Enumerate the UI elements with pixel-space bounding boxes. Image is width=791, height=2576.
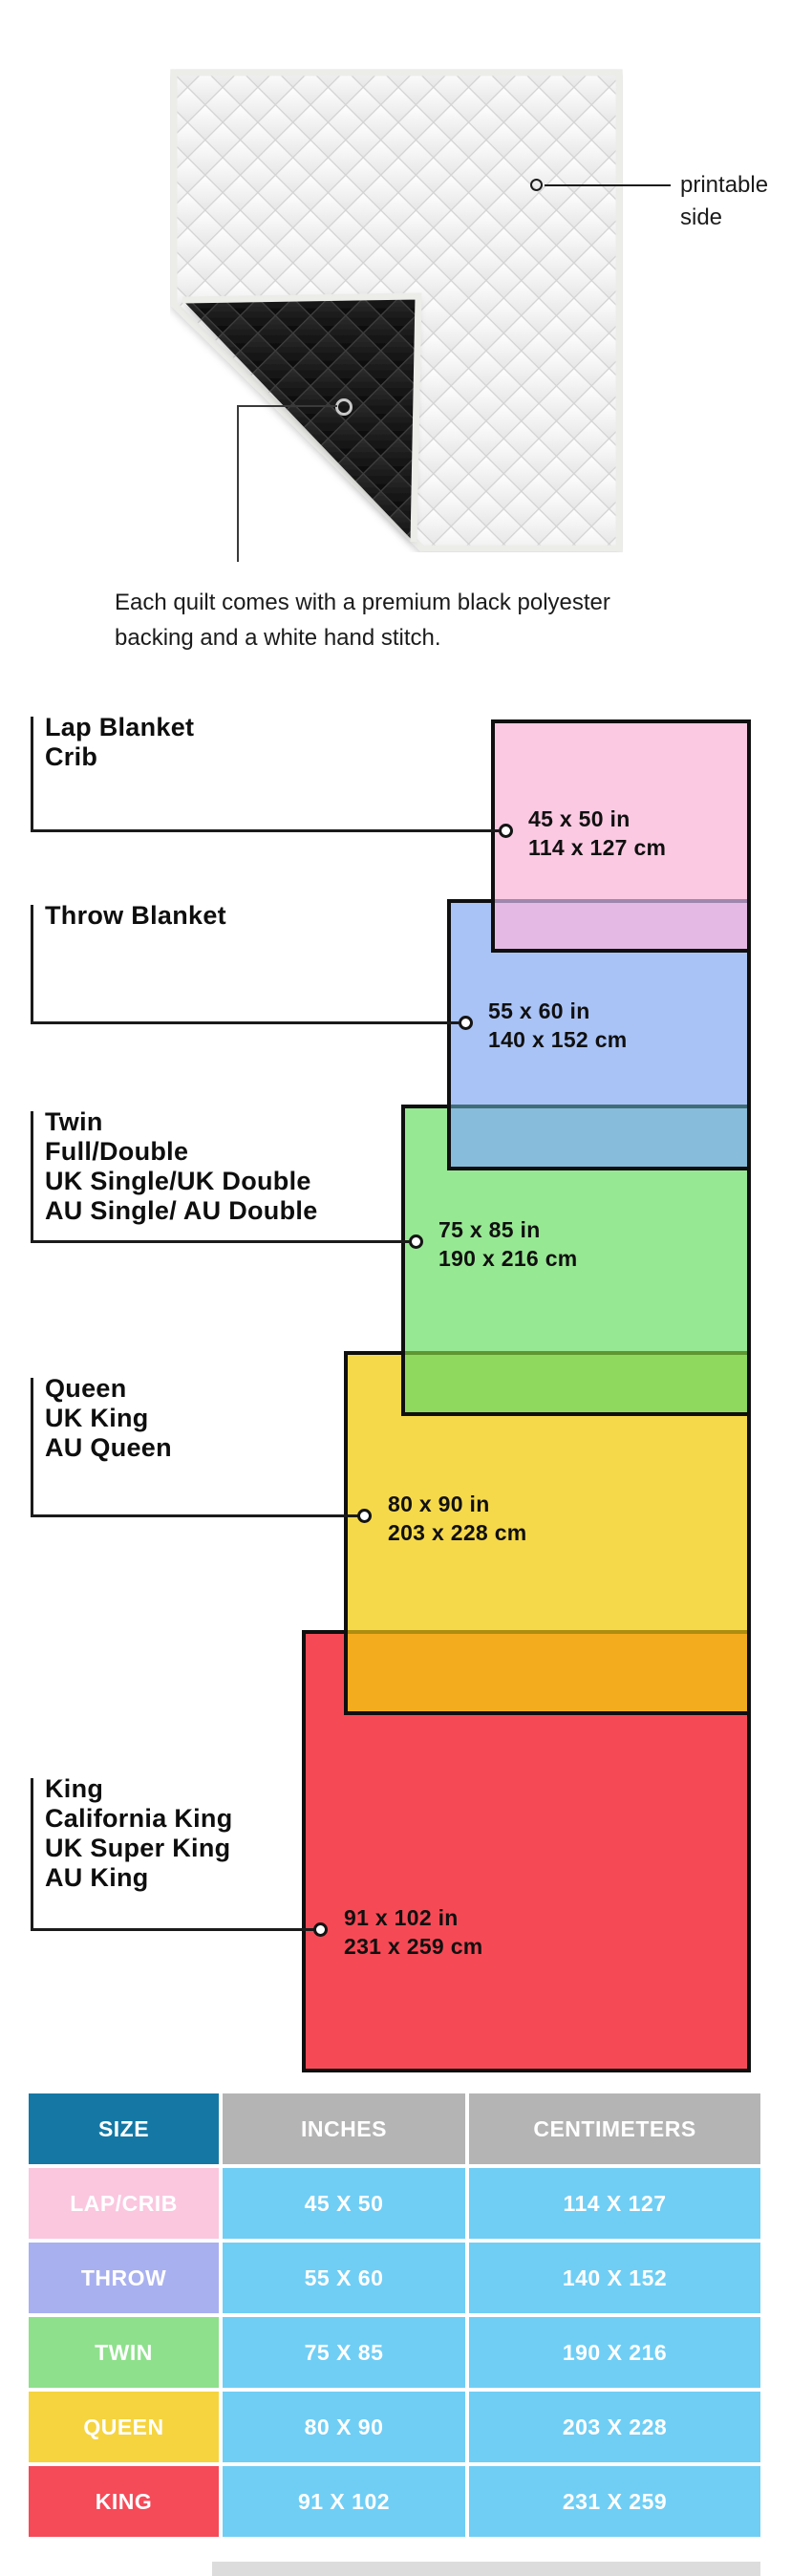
king-leader-vertical bbox=[31, 1778, 33, 1930]
table-cell-inches: 75 X 85 bbox=[223, 2317, 465, 2388]
twin-size-label: 75 x 85 in 190 x 216 cm bbox=[438, 1215, 578, 1273]
table-row-label-twin: TWIN bbox=[29, 2317, 219, 2388]
bottom-gray-strip bbox=[212, 2562, 760, 2576]
lap-crib-size-label: 45 x 50 in 114 x 127 cm bbox=[528, 805, 666, 862]
king-heading: King California King UK Super King AU Ki… bbox=[45, 1774, 233, 1893]
overlap-throw-twin bbox=[451, 1105, 747, 1167]
table-cell-cm: 114 X 127 bbox=[469, 2168, 760, 2239]
size-table: SIZE INCHES CENTIMETERS LAP/CRIB 45 X 50… bbox=[29, 2093, 760, 2537]
printable-side-leader-line bbox=[545, 184, 671, 186]
queen-size-label: 80 x 90 in 203 x 228 cm bbox=[388, 1490, 527, 1547]
size-guide-page: printable side Each quilt comes with a p… bbox=[0, 0, 791, 2576]
table-cell-cm: 190 X 216 bbox=[469, 2317, 760, 2388]
throw-marker-icon bbox=[459, 1016, 473, 1030]
table-cell-inches: 91 X 102 bbox=[223, 2466, 465, 2537]
table-cell-inches: 45 X 50 bbox=[223, 2168, 465, 2239]
twin-leader-vertical bbox=[31, 1111, 33, 1242]
quilt-black-backing-flap bbox=[182, 296, 418, 542]
overlap-twin-queen bbox=[405, 1351, 747, 1412]
printable-side-label: printable side bbox=[680, 169, 768, 234]
lap-crib-marker-icon bbox=[499, 824, 513, 838]
table-row-label-throw: THROW bbox=[29, 2243, 219, 2313]
queen-marker-icon bbox=[357, 1509, 372, 1523]
table-cell-cm: 140 X 152 bbox=[469, 2243, 760, 2313]
table-cell-inches: 55 X 60 bbox=[223, 2243, 465, 2313]
backing-leader-line-horizontal bbox=[238, 405, 337, 407]
table-row-label-king: KING bbox=[29, 2466, 219, 2537]
throw-leader-vertical bbox=[31, 905, 33, 1023]
quilt-caption: Each quilt comes with a premium black po… bbox=[115, 585, 610, 655]
table-cell-cm: 231 X 259 bbox=[469, 2466, 760, 2537]
twin-leader-horizontal bbox=[31, 1240, 409, 1243]
overlap-lap-throw bbox=[495, 899, 747, 949]
twin-heading: Twin Full/Double UK Single/UK Double AU … bbox=[45, 1107, 318, 1226]
throw-leader-horizontal bbox=[31, 1021, 459, 1024]
overlap-queen-king bbox=[348, 1630, 747, 1711]
table-header-size: SIZE bbox=[29, 2093, 219, 2164]
table-header-centimeters: CENTIMETERS bbox=[469, 2093, 760, 2164]
queen-leader-vertical bbox=[31, 1378, 33, 1516]
throw-size-label: 55 x 60 in 140 x 152 cm bbox=[488, 997, 628, 1054]
king-size-label: 91 x 102 in 231 x 259 cm bbox=[344, 1903, 483, 1961]
table-cell-cm: 203 X 228 bbox=[469, 2392, 760, 2462]
lap-crib-leader-horizontal bbox=[31, 829, 499, 832]
table-cell-inches: 80 X 90 bbox=[223, 2392, 465, 2462]
queen-leader-horizontal bbox=[31, 1514, 358, 1517]
king-leader-horizontal bbox=[31, 1928, 314, 1931]
twin-marker-icon bbox=[409, 1234, 423, 1249]
printable-side-marker-icon bbox=[530, 179, 543, 191]
queen-heading: Queen UK King AU Queen bbox=[45, 1374, 172, 1463]
king-marker-icon bbox=[313, 1922, 328, 1937]
lap-crib-heading: Lap Blanket Crib bbox=[45, 713, 194, 772]
lap-crib-leader-vertical bbox=[31, 717, 33, 831]
table-row-label-queen: QUEEN bbox=[29, 2392, 219, 2462]
backing-leader-line-vertical bbox=[237, 405, 239, 562]
table-row-label-lap-crib: LAP/CRIB bbox=[29, 2168, 219, 2239]
throw-heading: Throw Blanket bbox=[45, 901, 226, 931]
table-header-inches: INCHES bbox=[223, 2093, 465, 2164]
